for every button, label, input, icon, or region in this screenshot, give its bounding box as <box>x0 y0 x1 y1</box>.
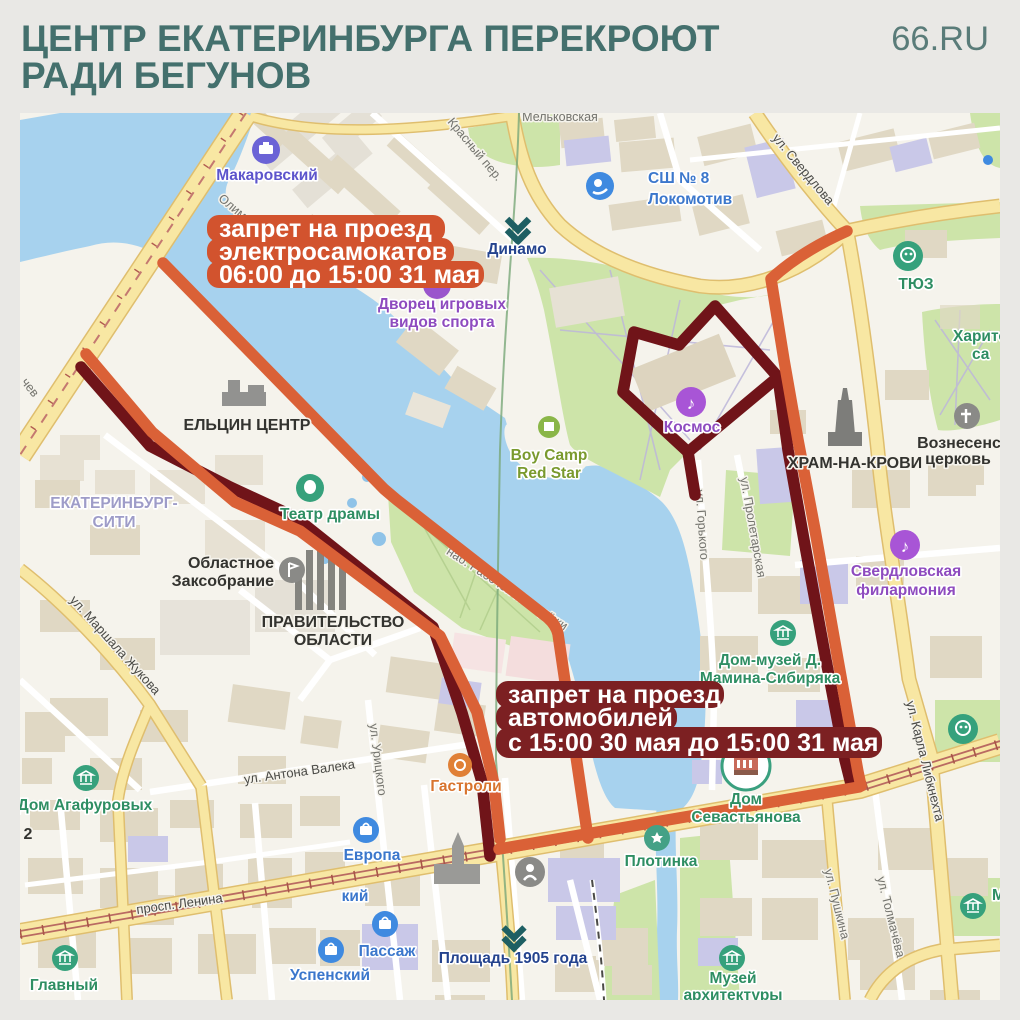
svg-text:ЕЛЬЦИН ЦЕНТР: ЕЛЬЦИН ЦЕНТР <box>184 417 311 434</box>
svg-text:♪: ♪ <box>687 394 696 413</box>
svg-text:Red Star: Red Star <box>517 465 581 482</box>
svg-text:автомобилей: автомобилей <box>508 704 673 732</box>
svg-text:♪: ♪ <box>901 537 910 556</box>
svg-text:ЦЕНТР ЕКАТЕРИНБУРГА ПЕРЕКРОЮТ: ЦЕНТР ЕКАТЕРИНБУРГА ПЕРЕКРОЮТ <box>21 18 720 59</box>
svg-text:Музей: Музей <box>710 970 757 987</box>
svg-text:филармония: филармония <box>856 582 956 599</box>
svg-text:с 15:00 30 мая до 15:00 31 мая: с 15:00 30 мая до 15:00 31 мая <box>508 729 878 757</box>
svg-text:видов спорта: видов спорта <box>389 314 495 331</box>
svg-text:06:00 до 15:00 31 мая: 06:00 до 15:00 31 мая <box>219 261 480 289</box>
svg-text:церковь: церковь <box>925 451 991 468</box>
svg-text:Дом: Дом <box>730 791 762 808</box>
svg-text:Заксобрание: Заксобрание <box>172 573 274 590</box>
svg-text:ЕКАТЕРИНБУРГ-: ЕКАТЕРИНБУРГ- <box>50 495 177 512</box>
svg-text:Вознесенск: Вознесенск <box>917 435 1010 452</box>
svg-text:Успенский: Успенский <box>290 967 370 984</box>
svg-text:Дом Агафуровых: Дом Агафуровых <box>18 797 153 814</box>
svg-text:Дом-музей Д.: Дом-музей Д. <box>719 652 821 669</box>
svg-text:СИТИ: СИТИ <box>93 514 136 531</box>
svg-text:Boy Camp: Boy Camp <box>511 447 588 464</box>
svg-text:ТЮЗ: ТЮЗ <box>898 276 933 293</box>
svg-text:Макаровский: Макаровский <box>216 167 318 184</box>
svg-text:Динамо: Динамо <box>487 241 546 258</box>
svg-text:ПРАВИТЕЛЬСТВО: ПРАВИТЕЛЬСТВО <box>262 614 405 631</box>
svg-text:ХРАМ-НА-КРОВИ: ХРАМ-НА-КРОВИ <box>788 455 922 472</box>
svg-text:РАДИ БЕГУНОВ: РАДИ БЕГУНОВ <box>21 55 311 96</box>
svg-text:ОБЛАСТИ: ОБЛАСТИ <box>294 632 372 649</box>
svg-text:Площадь 1905 года: Площадь 1905 года <box>439 950 588 967</box>
svg-text:са: са <box>972 346 990 363</box>
svg-text:Театр драмы: Театр драмы <box>280 506 380 523</box>
svg-text:Плотинка: Плотинка <box>625 853 698 870</box>
svg-text:Пассаж: Пассаж <box>359 943 417 960</box>
svg-text:Областное: Областное <box>188 555 274 572</box>
svg-text:66.RU: 66.RU <box>891 20 989 58</box>
svg-text:кий: кий <box>342 888 369 905</box>
svg-text:Дворец игровых: Дворец игровых <box>378 296 506 313</box>
svg-text:Главный: Главный <box>30 977 98 994</box>
svg-text:Космос: Космос <box>664 419 721 436</box>
svg-text:Севастьянова: Севастьянова <box>691 809 801 826</box>
svg-text:2: 2 <box>24 826 33 843</box>
svg-text:Европа: Европа <box>344 847 401 864</box>
svg-text:Локомотив: Локомотив <box>648 191 732 208</box>
svg-text:Гастроли: Гастроли <box>430 778 501 795</box>
svg-text:СШ № 8: СШ № 8 <box>648 170 710 187</box>
svg-text:Свердловская: Свердловская <box>851 563 961 580</box>
